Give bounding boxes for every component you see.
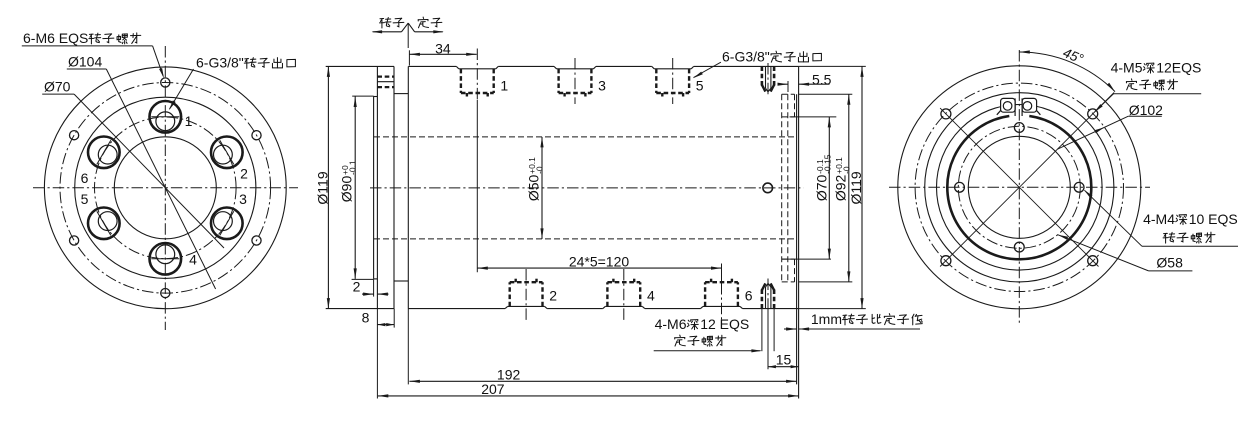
svg-text:4-M4: 4-M4 [1143, 211, 1175, 227]
svg-text:-0: -0 [535, 166, 545, 174]
svg-text:5.5: 5.5 [812, 71, 832, 87]
svg-text:Ø70: Ø70 [814, 174, 830, 201]
svg-text:1: 1 [500, 78, 508, 94]
svg-text:6: 6 [81, 170, 89, 186]
svg-text:4: 4 [189, 252, 197, 268]
svg-text:4-M5: 4-M5 [1111, 60, 1143, 76]
svg-text:12EQS: 12EQS [1156, 60, 1201, 76]
svg-text:3: 3 [598, 78, 606, 94]
svg-text:207: 207 [481, 381, 505, 397]
svg-text:5: 5 [81, 191, 89, 207]
svg-text:2: 2 [549, 288, 557, 304]
svg-text:6-G3/8": 6-G3/8" [196, 55, 244, 71]
svg-text:Ø58: Ø58 [1156, 255, 1183, 271]
svg-text:6-M6 EQS: 6-M6 EQS [23, 30, 88, 46]
svg-text:Ø92: Ø92 [833, 174, 849, 201]
svg-text:Ø50: Ø50 [526, 174, 542, 201]
svg-text:Ø104: Ø104 [68, 54, 102, 70]
svg-text:4-M6: 4-M6 [655, 316, 687, 332]
svg-text:8: 8 [362, 310, 370, 326]
svg-text:-0.15: -0.15 [823, 154, 833, 174]
svg-text:3: 3 [239, 191, 247, 207]
svg-text:24*5=120: 24*5=120 [569, 253, 630, 269]
svg-text:2: 2 [240, 166, 248, 182]
svg-text:2: 2 [353, 279, 361, 295]
svg-text:1mm: 1mm [811, 311, 842, 327]
svg-text:15: 15 [776, 352, 792, 368]
svg-text:4: 4 [647, 288, 655, 304]
svg-text:6-G3/8": 6-G3/8" [722, 49, 770, 65]
svg-text:5: 5 [696, 78, 704, 94]
svg-text:6: 6 [745, 288, 753, 304]
svg-text:12 EQS: 12 EQS [700, 316, 749, 332]
svg-text:1: 1 [185, 113, 193, 129]
svg-text:192: 192 [497, 367, 521, 383]
svg-text:Ø70: Ø70 [44, 79, 71, 95]
svg-text:Ø90: Ø90 [339, 176, 355, 203]
svg-text:-0.1: -0.1 [348, 160, 358, 175]
svg-text:10 EQS: 10 EQS [1189, 211, 1238, 227]
svg-text:Ø119: Ø119 [848, 171, 864, 204]
